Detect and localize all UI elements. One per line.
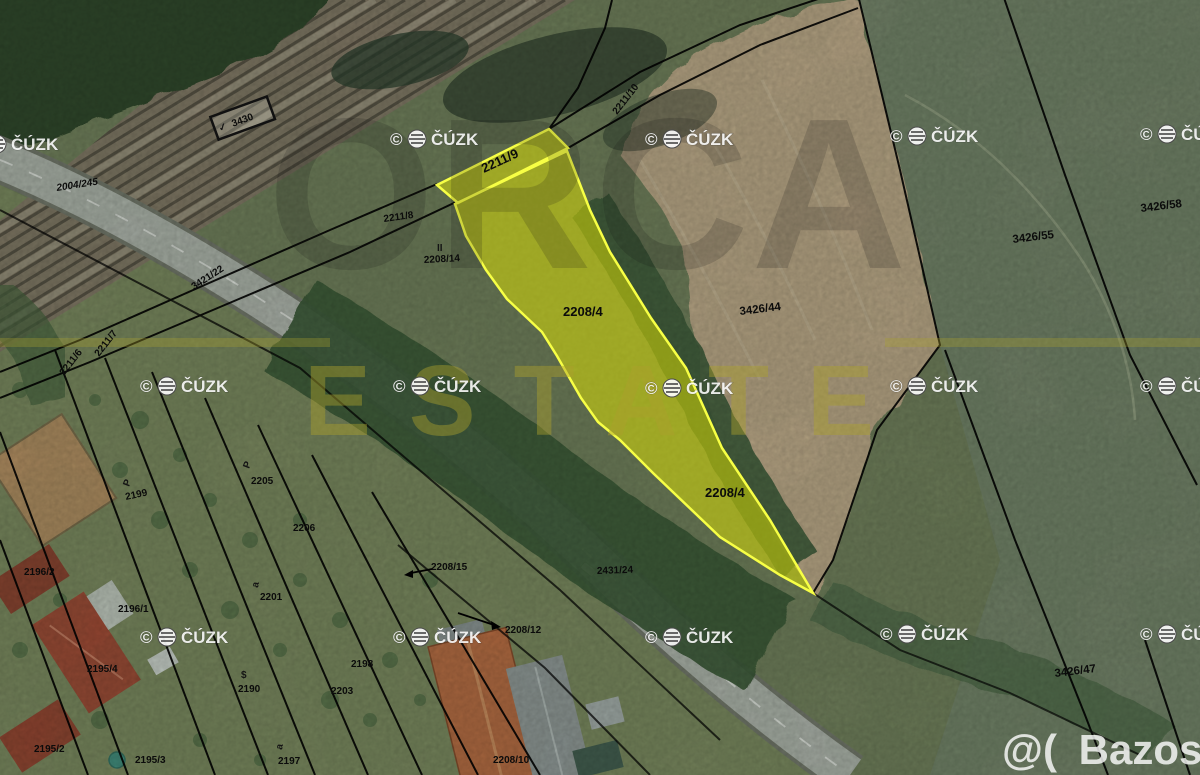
parcel-label: 2431/24 <box>597 565 634 577</box>
parcel-label: 2197 <box>278 756 301 767</box>
parcel-label: 2208/14 <box>424 253 461 266</box>
parcel-label: 2195/2 <box>34 744 65 755</box>
parcel-label: 2195/4 <box>87 664 118 675</box>
agency-watermark-line1: ORCA <box>267 73 908 314</box>
bazos-logo-icon: @( <box>1002 726 1057 773</box>
parcel-label: 2208/10 <box>493 755 530 766</box>
parcel-label: 2198 <box>351 659 374 670</box>
parcel-label: 2201 <box>260 592 283 603</box>
parcel-label: 2206 <box>293 523 316 534</box>
map-symbol-ii: II <box>437 243 443 254</box>
parcel-label-2208-4-lower: 2208/4 <box>705 485 746 500</box>
parcel-label: 2208/12 <box>505 625 542 636</box>
bazos-site-name: Bazos.cz <box>1079 726 1200 773</box>
parcel-label: 2208/15 <box>431 562 468 573</box>
cadastral-map-view[interactable]: © ČÚZK <box>0 0 1200 775</box>
parcel-label: 2196/2 <box>24 567 55 578</box>
parcel-label: 2190 <box>238 684 261 695</box>
parcel-label: 2196/1 <box>118 604 149 615</box>
parcel-label-2208-4: 2208/4 <box>563 304 604 319</box>
aerial-cadastral-map: © ČÚZK <box>0 0 1200 775</box>
bazos-watermark: @( Bazos.cz <box>1002 726 1200 773</box>
parcel-label: 2205 <box>251 476 274 487</box>
parcel-label: 2203 <box>331 686 354 697</box>
map-symbol-s: $ <box>241 670 247 681</box>
agency-watermark-line2: ESTATE <box>304 345 912 457</box>
parcel-label: 2195/3 <box>135 755 166 766</box>
